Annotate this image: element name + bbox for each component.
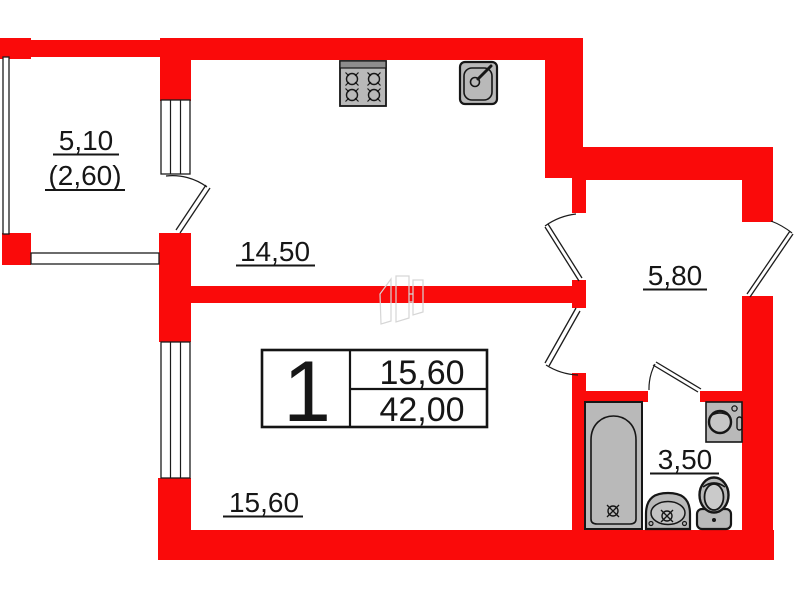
wall-bottom xyxy=(158,530,774,560)
wall-hallway-left-stub-top xyxy=(572,178,586,213)
living-area-value: 15,60 xyxy=(379,354,464,392)
balcony-coefficient-label: (2,60) xyxy=(48,160,121,191)
wall-bathroom-top-left xyxy=(585,391,648,402)
balcony-door xyxy=(166,176,210,233)
living-room-area-label: 15,60 xyxy=(229,487,299,518)
bathroom-area-label: 3,50 xyxy=(658,444,713,475)
entrance-door xyxy=(747,221,793,297)
wall-entrance-upper xyxy=(742,180,773,222)
walls xyxy=(0,38,774,560)
bathroom-door xyxy=(649,362,701,392)
wall-hallway-top xyxy=(583,147,773,180)
living-room-door xyxy=(545,308,580,375)
kitchen-sink-icon xyxy=(460,62,497,104)
wall-living-bathroom xyxy=(572,373,586,533)
wash-basin-icon xyxy=(646,493,690,529)
wall-bathroom-top-right xyxy=(700,391,743,402)
wall-balcony-kitchen-pillar xyxy=(160,38,191,101)
balcony-area-label: 5,10 xyxy=(59,125,114,156)
total-area-value: 42,00 xyxy=(379,391,464,429)
room-count-value: 1 xyxy=(283,344,331,440)
info-table: 1 15,60 42,00 xyxy=(262,344,487,440)
bathtub-icon xyxy=(585,402,642,529)
wall-kitchen-hallway xyxy=(545,60,583,178)
floor-plan: 5,10 (2,60) 14,50 5,80 15,60 3,50 1 15,6… xyxy=(0,0,800,600)
wall-right-lower xyxy=(742,296,773,560)
stove-icon xyxy=(340,61,386,106)
living-room-window xyxy=(161,342,190,478)
kitchen-door xyxy=(545,214,582,281)
balcony-bottom-window xyxy=(31,253,159,264)
kitchen-area-label: 14,50 xyxy=(240,236,310,267)
balcony-left-window xyxy=(3,57,9,234)
wall-hallway-left-stub-mid xyxy=(572,280,586,308)
wall-kitchen-top xyxy=(160,38,583,60)
wall-left-lower-block xyxy=(158,478,191,534)
washing-machine-icon xyxy=(706,402,742,442)
wall-left-mid-pillar xyxy=(159,233,191,342)
wall-balcony-bottom-left-block xyxy=(2,233,31,265)
kitchen-balcony-window xyxy=(161,100,190,174)
wall-balcony-top xyxy=(0,40,162,57)
hallway-area-label: 5,80 xyxy=(648,260,703,291)
wall-kitchen-living-divider xyxy=(190,286,576,303)
toilet-icon xyxy=(697,478,731,530)
